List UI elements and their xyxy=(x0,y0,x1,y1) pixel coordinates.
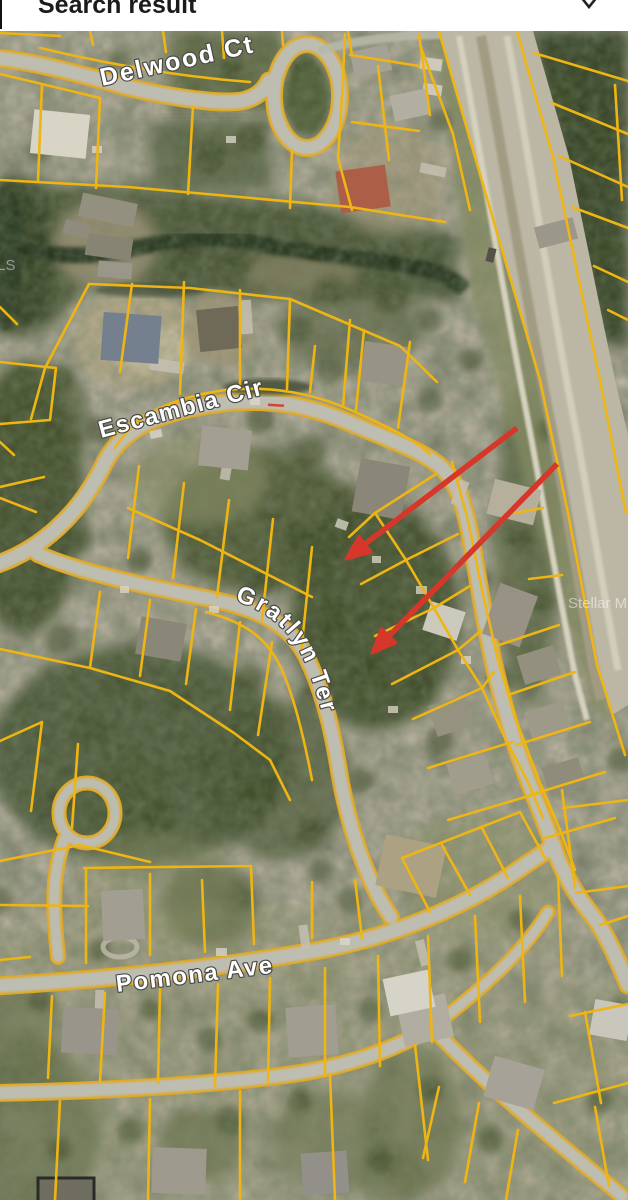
svg-text:Search result: Search result xyxy=(38,0,197,19)
svg-text:Stellar MLS: Stellar MLS xyxy=(568,595,628,612)
svg-text:Stellar MLS: Stellar MLS xyxy=(0,257,16,274)
